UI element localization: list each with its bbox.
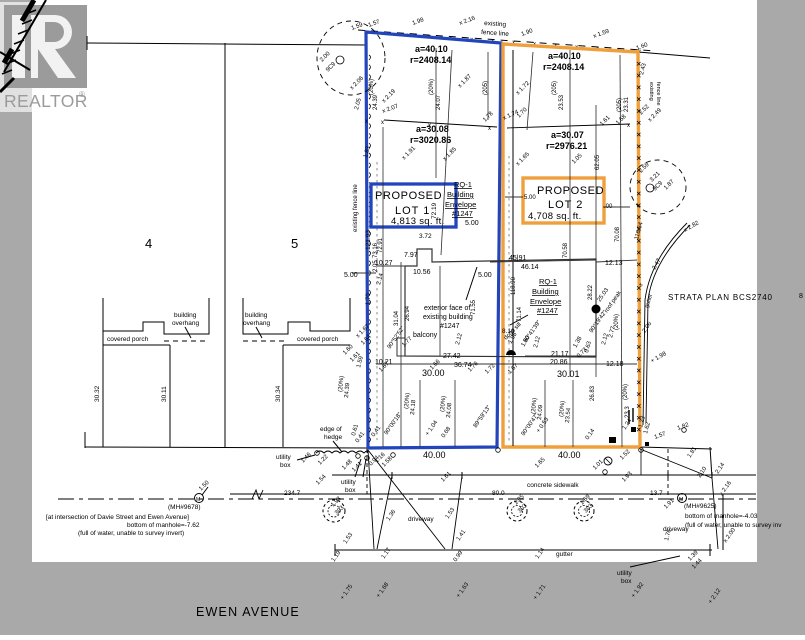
svg-text:Building: Building [447, 190, 474, 199]
svg-text:Envelope: Envelope [530, 297, 561, 306]
svg-text:12.13: 12.13 [605, 260, 623, 267]
svg-text:#1247: #1247 [440, 323, 460, 330]
svg-text:(20%): (20%) [369, 79, 375, 95]
svg-text:20.86: 20.86 [550, 359, 568, 366]
svg-text:28.22: 28.22 [588, 284, 594, 300]
svg-text:r=2408.14: r=2408.14 [410, 55, 451, 65]
svg-text:5.00: 5.00 [478, 272, 492, 279]
svg-text:26.83: 26.83 [590, 385, 596, 401]
svg-text:(205): (205) [483, 81, 489, 95]
svg-text:overhang: overhang [172, 320, 199, 327]
svg-text:utility: utility [341, 479, 357, 486]
svg-text:covered porch: covered porch [107, 336, 149, 343]
svg-text:23.3: 23.3 [625, 406, 631, 418]
svg-text:overhang: overhang [243, 320, 270, 327]
svg-text:x: x [365, 119, 368, 125]
svg-text:(20%): (20%) [614, 314, 620, 330]
svg-text:27.42: 27.42 [443, 353, 461, 360]
svg-text:a=40.10: a=40.10 [548, 51, 581, 61]
svg-text:118.90: 118.90 [511, 276, 517, 295]
svg-text:REALTOR: REALTOR [4, 91, 88, 111]
svg-text:(205): (205) [552, 81, 558, 95]
svg-text:x: x [627, 123, 630, 129]
svg-text:box: box [280, 462, 291, 469]
svg-text:Envelope: Envelope [445, 200, 476, 209]
svg-text:a=40.10: a=40.10 [415, 44, 448, 54]
svg-text:8: 8 [799, 293, 803, 300]
svg-text:30.11: 30.11 [161, 386, 168, 402]
svg-text:40.00: 40.00 [423, 450, 446, 460]
svg-text:72.91: 72.91 [378, 237, 384, 253]
svg-text:LOT 2: LOT 2 [548, 199, 583, 211]
svg-text:M: M [196, 497, 200, 503]
svg-text:#1247: #1247 [452, 209, 473, 218]
svg-text:23.31: 23.31 [624, 96, 630, 112]
svg-text:(205): (205) [617, 98, 623, 112]
svg-text:bottom of manhole=-7.62: bottom of manhole=-7.62 [127, 522, 200, 529]
svg-text:r=3020.86: r=3020.86 [410, 135, 451, 145]
svg-text:box: box [345, 487, 356, 494]
svg-text:30.01: 30.01 [557, 369, 580, 379]
svg-text:PROPOSED: PROPOSED [375, 190, 442, 202]
svg-text:STRATA PLAN BCS2740: STRATA PLAN BCS2740 [668, 293, 773, 302]
svg-text:2.05: 2.05 [373, 260, 379, 272]
svg-text:10.56: 10.56 [413, 269, 431, 276]
svg-text:(20%): (20%) [623, 384, 629, 400]
svg-text:[at intersection of Davie Stre: [at intersection of Davie Street and Ewe… [46, 514, 189, 521]
svg-text:balcony: balcony [413, 332, 438, 339]
svg-text:x: x [488, 126, 491, 132]
svg-text:box: box [621, 578, 632, 585]
svg-text:covered porch: covered porch [297, 336, 339, 343]
svg-text:5.00: 5.00 [524, 195, 536, 201]
svg-text:hedge: hedge [324, 434, 342, 441]
svg-text:gutter: gutter [556, 551, 573, 558]
svg-text:r=2408.14: r=2408.14 [543, 62, 584, 72]
svg-text:121.93: 121.93 [365, 230, 372, 250]
svg-text:4: 4 [145, 236, 152, 251]
svg-text:(MH#9678): (MH#9678) [168, 504, 201, 511]
svg-text:24.07: 24.07 [436, 94, 442, 110]
svg-text:exterior face of: exterior face of [424, 305, 470, 312]
svg-text:(MH#9625): (MH#9625) [684, 503, 717, 510]
svg-text:30.34: 30.34 [275, 385, 282, 402]
svg-text:21.17: 21.17 [551, 351, 569, 358]
svg-text:1.70: 1.70 [366, 293, 372, 305]
svg-text:RQ-1: RQ-1 [454, 180, 472, 189]
svg-text:concrete sidewalk: concrete sidewalk [527, 482, 579, 489]
svg-text:a=30.08: a=30.08 [416, 124, 449, 134]
svg-text:PROPOSED: PROPOSED [537, 185, 604, 197]
svg-text:5.00: 5.00 [344, 272, 358, 279]
svg-text:7.97: 7.97 [404, 252, 418, 259]
svg-text:23.53: 23.53 [559, 94, 565, 110]
svg-text:edge of: edge of [320, 426, 342, 433]
svg-text:5: 5 [291, 236, 298, 251]
svg-text:71.14: 71.14 [517, 306, 523, 322]
svg-text:30.32: 30.32 [94, 385, 101, 402]
svg-text:EWEN AVENUE: EWEN AVENUE [196, 605, 300, 619]
svg-text:existing building: existing building [423, 314, 473, 321]
svg-text:utility: utility [617, 570, 633, 577]
svg-text:(full of water, unable to surv: (full of water, unable to survey inv [685, 522, 782, 529]
svg-text:existing: existing [648, 82, 654, 101]
svg-text:fence line: fence line [655, 82, 661, 106]
svg-text:®: ® [79, 90, 85, 99]
svg-text:driveway: driveway [408, 516, 434, 523]
svg-text:building: building [174, 312, 197, 319]
svg-text:x: x [428, 123, 431, 129]
svg-text:72.19: 72.19 [431, 202, 438, 219]
svg-text:40.00: 40.00 [558, 450, 581, 460]
svg-text:24.39: 24.39 [373, 94, 379, 110]
svg-text:utility: utility [276, 454, 292, 461]
svg-text:(full of water, unable to surv: (full of water, unable to survey invert) [78, 530, 184, 537]
svg-text:x: x [381, 120, 384, 126]
svg-text:building: building [245, 312, 268, 319]
svg-text:3.72: 3.72 [419, 233, 432, 240]
svg-text:4,708 sq. ft.: 4,708 sq. ft. [528, 211, 582, 222]
svg-text:M: M [679, 497, 683, 503]
svg-text:Building: Building [532, 287, 559, 296]
svg-text:existing fence line: existing fence line [353, 184, 359, 232]
svg-text:bottom of manhole=-4.03: bottom of manhole=-4.03 [685, 513, 758, 520]
svg-text:46.14: 46.14 [521, 264, 539, 271]
svg-text:5.00: 5.00 [465, 220, 479, 227]
svg-text:RQ-1: RQ-1 [539, 277, 557, 286]
svg-text:71.55: 71.55 [471, 299, 477, 315]
svg-text:26.94: 26.94 [405, 305, 411, 321]
svg-text:.00: .00 [604, 204, 613, 210]
svg-text:(20%): (20%) [429, 79, 435, 95]
svg-text:12.18: 12.18 [606, 361, 624, 368]
svg-text:r=2976.21: r=2976.21 [546, 141, 587, 151]
svg-text:31.04: 31.04 [394, 310, 400, 326]
svg-text:a=30.07: a=30.07 [551, 130, 584, 140]
svg-text:#1247: #1247 [537, 306, 558, 315]
svg-text:70.08: 70.08 [615, 226, 621, 242]
svg-text:70.58: 70.58 [563, 242, 569, 258]
svg-text:62.05: 62.05 [595, 154, 601, 170]
svg-text:45|91: 45|91 [509, 255, 526, 262]
